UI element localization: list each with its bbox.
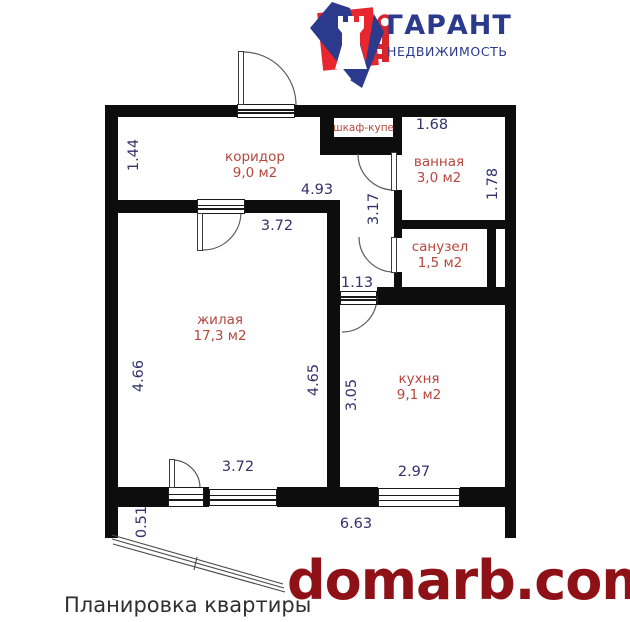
floorplan-canvas: ГАРАНТ НЕДВИЖИМОСТЬ [0,0,630,622]
dim-hallway-door: 1.13 [341,275,373,291]
entrance-door-arc [244,52,296,105]
dim-living-right: 4.65 [306,364,322,396]
wall-corridor-right [245,200,340,213]
dim-corridor-left: 1.44 [126,139,142,171]
room-area: 1,5 м2 [412,255,469,271]
bath-door-arc [358,154,394,190]
dim-living-top: 3.72 [261,218,293,234]
dim-bathroom-right: 1.78 [485,168,501,200]
balcony-door-leaf [169,459,175,488]
room-label-kitchen: кухня 9,1 м2 [397,371,442,403]
wall-under-wardrobe [332,138,394,155]
wall-bath-seg2 [394,190,402,238]
wall-living-divider [327,200,340,487]
dim-balcony-side: 0.51 [134,506,150,538]
room-name: жилая [193,312,246,328]
wall-bottom-c [277,487,378,507]
wardrobe-label: шкаф-купе [333,122,394,134]
dim-bathroom-top: 1.68 [416,117,448,133]
wardrobe-box: шкаф-купе [332,116,395,139]
room-area: 17,3 м2 [193,328,246,344]
room-name: ванная [414,154,464,170]
bath-door-leaf [391,152,397,191]
living-door-arc [203,212,241,250]
wall-wc-niche [487,229,496,287]
living-door-threshold [197,199,245,214]
wall-wc-bottom [377,287,516,305]
dim-living-left: 4.66 [131,360,147,392]
entrance-door-leaf [238,51,244,105]
dim-living-bottom: 3.72 [222,459,254,475]
balcony-door-arc [172,460,200,488]
room-label-wc: санузел 1,5 м2 [412,239,469,271]
wall-right [505,105,516,538]
garant-logo-icon [308,0,392,88]
living-window [209,489,277,506]
balcony-glazing [112,535,285,592]
logo-title: ГАРАНТ [386,10,512,41]
wall-bottom-d [460,487,516,507]
wall-bath-wc-divider [394,220,516,229]
dim-hallway-height: 3.17 [366,193,382,225]
watermark-text: domarb.com [287,549,630,612]
wc-door-arc [359,237,394,272]
room-area: 9,0 м2 [225,165,285,181]
room-area: 3,0 м2 [414,170,464,186]
wall-left [105,105,118,538]
room-name: коридор [225,149,285,165]
kitchen-door-threshold [340,291,377,305]
wall-wardrobe-stub [320,117,332,155]
room-label-living: жилая 17,3 м2 [193,312,246,344]
room-label-bathroom: ванная 3,0 м2 [414,154,464,186]
dim-kitchen-left: 3.05 [344,379,360,411]
door-arcs-and-balcony [0,0,630,622]
dim-kitchen-bottom: 2.97 [398,464,430,480]
wall-bath-seg1 [394,105,402,155]
room-name: кухня [397,371,442,387]
dim-corridor-width: 4.93 [301,182,333,198]
logo-subtitle: НЕДВИЖИМОСТЬ [387,44,508,59]
wall-top [105,105,516,117]
wc-door-leaf [391,237,397,273]
kitchen-window [378,488,460,507]
balcony-door-threshold [168,487,204,507]
plan-caption: Планировка квартиры [64,593,311,617]
room-name: санузел [412,239,469,255]
wall-bottom-a [105,487,168,507]
room-label-corridor: коридор 9,0 м2 [225,149,285,181]
wall-corridor-left [105,200,197,213]
dim-bottom-total: 6.63 [340,516,372,532]
room-area: 9,1 м2 [397,387,442,403]
entrance-threshold [237,104,295,118]
agency-logo: ГАРАНТ НЕДВИЖИМОСТЬ [308,0,538,88]
living-door-leaf [197,213,203,251]
